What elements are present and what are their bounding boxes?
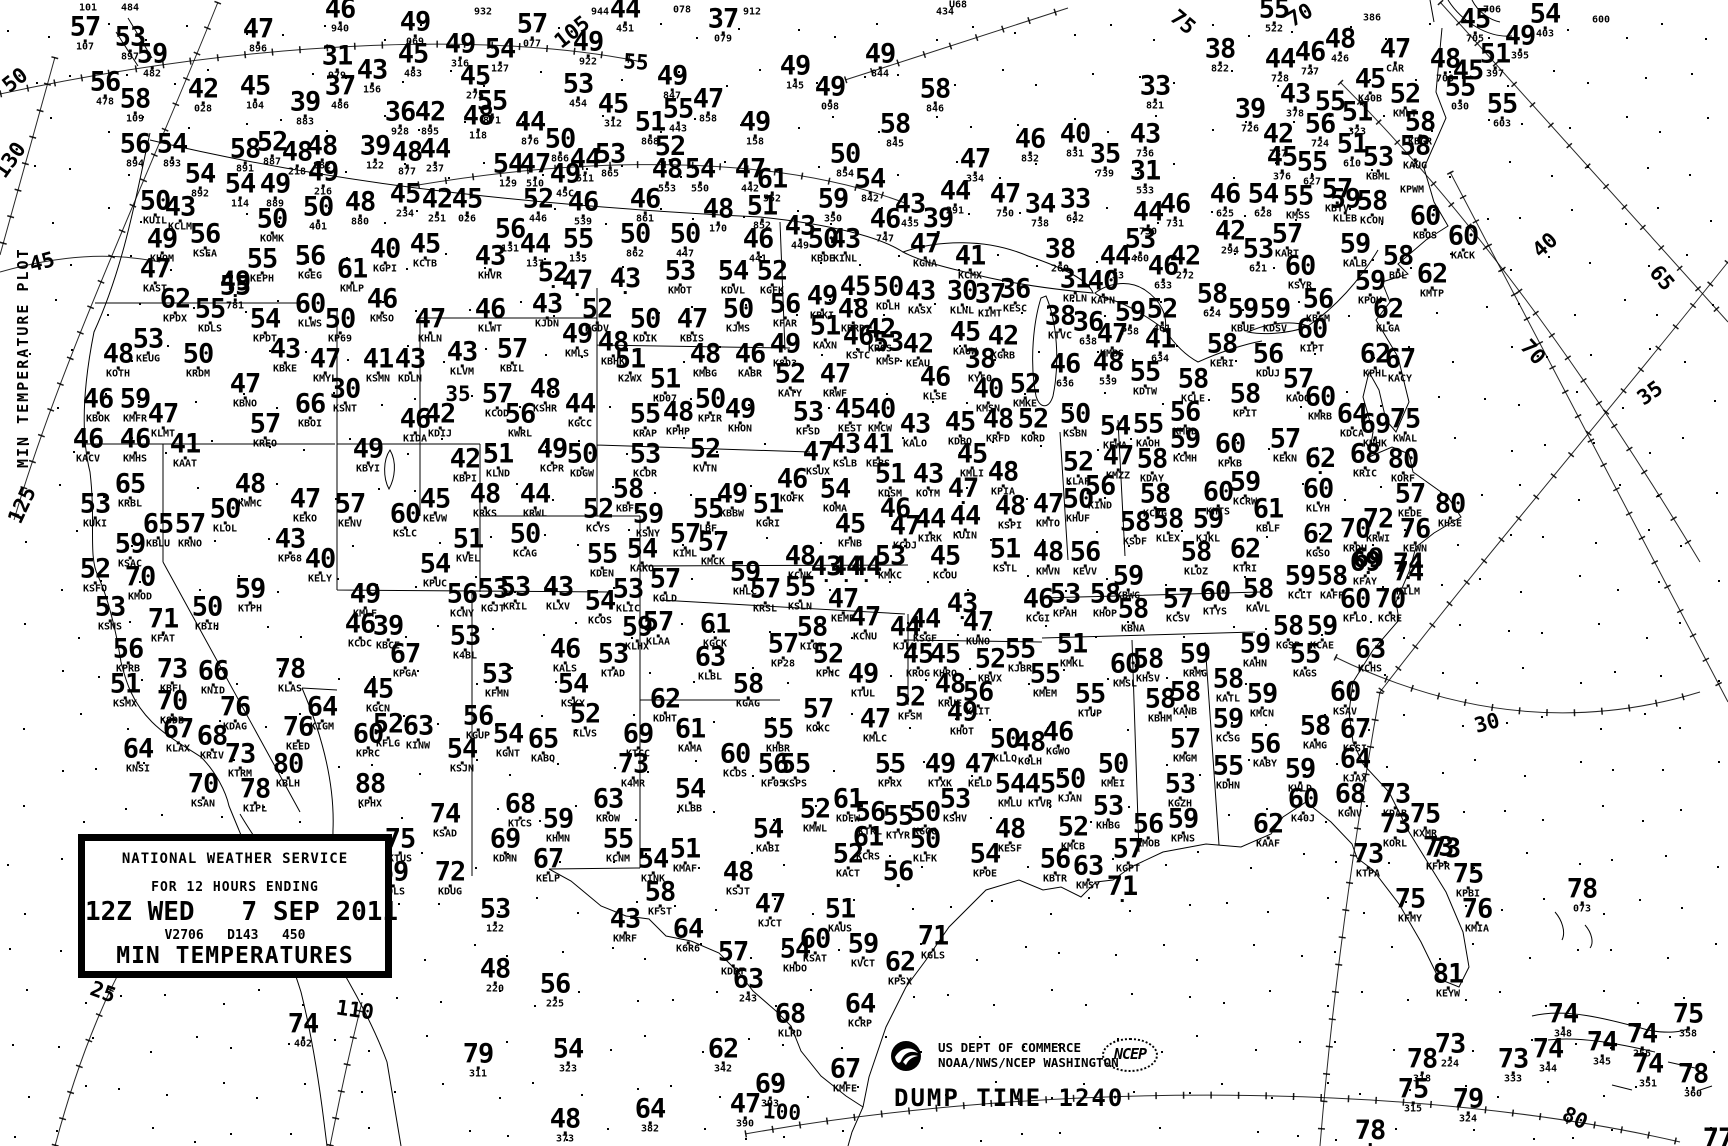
station-id: 234: [390, 209, 421, 219]
station-539: 48539: [1093, 351, 1124, 387]
station-id: KCHS: [1355, 664, 1386, 674]
station-KEKO: 47KEKO: [290, 488, 321, 524]
station-temp: 45: [903, 643, 934, 665]
station-KAMG: 58KAMG: [1300, 715, 1331, 751]
station-id: KHOT: [947, 727, 978, 737]
station-id: 894: [120, 159, 151, 169]
station-id: 351: [1633, 1079, 1664, 1089]
station-id: KRIL: [500, 602, 531, 612]
station-temp: 50: [723, 298, 754, 320]
station-temp: 46: [325, 0, 356, 20]
station-id: 251: [422, 214, 453, 224]
station-KBOS: 60KBOS: [1410, 205, 1441, 241]
station-id: K6R6: [673, 944, 704, 954]
station-temp: 43: [913, 463, 944, 485]
station-temp: 50: [830, 143, 861, 165]
station-temp: 60: [390, 503, 421, 525]
station-KPUC: 54KPUC: [420, 553, 451, 589]
station-temp: 44: [515, 111, 546, 133]
station-temp: 44: [520, 483, 551, 505]
station-KGPI: 40KGPI: [370, 238, 401, 274]
station-446: 52446: [523, 188, 554, 224]
station-id: 028: [188, 104, 219, 114]
station-880: 48880: [345, 191, 376, 227]
station-temp: 78: [1355, 1120, 1386, 1142]
station-temp: 46: [880, 498, 911, 520]
station-KSLC: 60KSLC: [390, 503, 421, 539]
station-id: KAPN: [1088, 296, 1119, 306]
station-KPOU: 59KPOU: [1355, 270, 1386, 306]
station-KALO: 43KALO: [900, 413, 931, 449]
station-KAPN: 40KAPN: [1088, 270, 1119, 306]
station-893: 54893: [157, 133, 188, 169]
station-id: 750: [990, 209, 1021, 219]
station-id: KCYS: [583, 524, 614, 534]
station-id: KAAT: [170, 459, 201, 469]
station-temp: 43: [395, 348, 426, 370]
station-id: KLXV: [543, 602, 574, 612]
station-KCOS: 54KCOS: [585, 590, 616, 626]
station-KRAP: 55KRAP: [630, 403, 661, 439]
station: 43: [610, 268, 641, 294]
station-temp: 63: [695, 646, 726, 668]
station-KBIH: 50KBIH: [192, 596, 223, 632]
station-temp: 43: [830, 228, 861, 250]
station-temp: 43: [610, 268, 641, 290]
station-temp: 50: [210, 498, 241, 520]
station-temp: 54: [855, 168, 886, 190]
map-label-600: 600: [1592, 15, 1610, 26]
station-KSFO: 52KSFO: [80, 558, 111, 594]
station-temp: 50: [670, 223, 701, 245]
station-633: 46633: [1148, 255, 1179, 291]
station-id: KAHN: [1240, 659, 1271, 669]
station-temp: 43: [1280, 83, 1311, 105]
station-026: 45026: [452, 188, 483, 224]
station-id: KOKC: [803, 724, 834, 734]
station-id: KFPR: [1423, 862, 1454, 872]
station-id: KCON: [1357, 216, 1388, 226]
station-id: KGLD: [650, 594, 681, 604]
station-KCNU: 47KCNU: [850, 606, 881, 642]
station-temp: 57: [670, 523, 701, 545]
station-id: 109: [120, 114, 151, 124]
station-temp: 55: [1487, 93, 1518, 115]
station-940: 46940: [325, 0, 356, 34]
station-id: KPSX: [885, 977, 916, 987]
station-id: KMTP: [1417, 289, 1448, 299]
station-KMLS: 49KMLS: [562, 323, 593, 359]
station-KTPH: 59KTPH: [235, 578, 266, 614]
station-temp: 61: [1253, 498, 1284, 520]
station-temp: 53: [133, 328, 164, 350]
station-KAMA: 61KAMA: [675, 718, 706, 754]
station-114: 54114: [225, 173, 256, 209]
station-temp: 63: [1355, 638, 1386, 660]
station-id: KNSI: [123, 764, 154, 774]
station-id: KGWO: [1043, 747, 1074, 757]
station-id: KASX: [905, 306, 936, 316]
station-temp: 76: [220, 696, 251, 718]
station-id: KCNM: [603, 854, 634, 864]
station-KMRB: 60KMRB: [1305, 386, 1336, 422]
station: 62: [1305, 448, 1336, 474]
station-id: KFST: [645, 907, 676, 917]
station-id: KLVM: [447, 367, 478, 377]
station-id: KVCT: [848, 959, 879, 969]
station-temp: 42: [450, 448, 481, 470]
station-KLVS: 52KLVS: [570, 703, 601, 739]
station-temp: 58: [1400, 135, 1431, 157]
station-temp: 59: [1168, 808, 1199, 830]
station-id: 747: [870, 234, 901, 244]
station-KAUG: 58KAUG: [1400, 135, 1431, 171]
station-KLFK: 50KLFK: [910, 828, 941, 864]
station-KPLN: 31KPLN: [1060, 268, 1091, 304]
station-temp: 55: [1445, 76, 1476, 98]
station-id: KINL: [830, 254, 861, 264]
station-temp: 57: [335, 493, 366, 515]
station-id: 324: [1453, 1114, 1484, 1124]
station-temp: 62: [1305, 448, 1336, 470]
station-KHSE: 80KHSE: [1435, 493, 1466, 529]
station-636: 46636: [1050, 353, 1081, 389]
station-id: KFLO: [1340, 614, 1371, 624]
station-temp: 55: [630, 403, 661, 425]
station-temp: 48: [690, 343, 721, 365]
station-KACK: 60KACK: [1448, 225, 1479, 261]
station-id: KHVR: [475, 271, 506, 281]
station-895: 42895: [415, 101, 446, 137]
station-KSUX: 47KSUX: [803, 441, 834, 477]
station-KTUP: 55KTUP: [1075, 683, 1106, 719]
station-390: 47390: [730, 1093, 761, 1129]
station-KAGS: 55KAGS: [1290, 643, 1321, 679]
station-temp: 47: [755, 893, 786, 915]
station-temp: 39: [360, 135, 391, 157]
station-temp: 71: [1107, 876, 1138, 898]
station-id: KSJT: [723, 887, 754, 897]
station-KSDF: 58KSDF: [1120, 511, 1151, 547]
station-temp: 52: [523, 188, 554, 210]
station-323: 54323: [553, 1038, 584, 1074]
station-temp: 56: [120, 133, 151, 155]
station-KMWL: 52KMWL: [800, 798, 831, 834]
station-temp: 64: [845, 993, 876, 1015]
station-id: KLFK: [910, 854, 941, 864]
station-temp: 54: [1100, 415, 1131, 437]
station-821: 33821: [1140, 75, 1171, 111]
station-temp: 70: [1375, 588, 1406, 610]
station-temp: 59: [1228, 298, 1259, 320]
station-temp: 52: [757, 260, 788, 282]
station-temp: 51: [483, 443, 514, 465]
station-KTYR: 55KTYR: [883, 805, 914, 841]
station-temp: 51: [875, 463, 906, 485]
station-id: KPAH: [1050, 609, 1081, 619]
station-345: 74345: [1587, 1031, 1618, 1067]
station-id: KBNA: [1118, 624, 1149, 634]
station-temp: 45: [945, 411, 976, 433]
station-temp: 44: [950, 505, 981, 527]
station-KLAA: 57KLAA: [643, 611, 674, 647]
station-id: KMVN: [1033, 567, 1064, 577]
station-KSNT: 30KSNT: [330, 378, 361, 414]
station-id: 073: [1567, 904, 1598, 914]
station-id: KBYI: [353, 464, 384, 474]
station-temp: 46: [345, 613, 376, 635]
station-temp: 45: [835, 513, 866, 535]
station-temp: 46: [1015, 128, 1046, 150]
station-KHDO: 54KHDO: [780, 938, 811, 974]
station-237: 44237: [420, 138, 451, 174]
station-KCRP: 64KCRP: [845, 993, 876, 1029]
station-KEPH: 55KEPH: [247, 248, 278, 284]
station-temp: 43: [830, 433, 861, 455]
station-KWAL: 75KWAL: [1390, 408, 1421, 444]
station-id: KLAX: [163, 744, 194, 754]
station-402: 74402: [288, 1013, 319, 1049]
station-KRIL: 53KRIL: [500, 576, 531, 612]
station-id: KDGW: [567, 469, 598, 479]
station-KGEG: 56KGEG: [295, 245, 326, 281]
station-temp: 43: [165, 196, 196, 218]
station-id: KMHS: [120, 454, 151, 464]
station-temp: 49: [445, 33, 476, 55]
station-id: KHON: [725, 424, 756, 434]
station-922: 49922: [573, 31, 604, 67]
station-id: KP68: [275, 554, 306, 564]
station-temp: 56: [295, 245, 326, 267]
station-temp: 54: [1248, 183, 1279, 205]
station-id: K4BL: [450, 651, 481, 661]
station-KREO: 57KREO: [250, 413, 281, 449]
station-id: KMLS: [562, 349, 593, 359]
station-temp: 50: [630, 308, 661, 330]
station-temp: 45: [950, 321, 981, 343]
station-id: KBIL: [497, 364, 528, 374]
station-id: KRNO: [175, 539, 206, 549]
station-temp: 45: [390, 183, 421, 205]
station-KGNV: 68KGNV: [1335, 783, 1366, 819]
station-KPSX: 62KPSX: [885, 951, 916, 987]
station: 71: [1107, 876, 1138, 902]
station-temp: 58: [645, 881, 676, 903]
station-id: KMCN: [1247, 709, 1278, 719]
station-KLAS: 78KLAS: [275, 658, 306, 694]
station-id: KEVW: [420, 514, 451, 524]
station-temp: 70: [157, 690, 188, 712]
station-KLAX: 67KLAX: [163, 718, 194, 754]
station-KLNL: 30KLNL: [947, 280, 978, 316]
station-KFLO: 60KFLO: [1340, 588, 1371, 624]
station-KHOT: 49KHOT: [947, 701, 978, 737]
station-temp: 68: [1350, 443, 1381, 465]
station-temp: 45: [957, 443, 988, 465]
station-temp: 57: [650, 568, 681, 590]
station-342: 62342: [708, 1038, 739, 1074]
station-temp: 52: [895, 686, 926, 708]
station-temp: 79: [1453, 1088, 1484, 1110]
station-temp: 59: [235, 578, 266, 600]
station-550: 54550: [685, 158, 716, 194]
station-temp: 42: [903, 333, 934, 355]
station-temp: 50: [1098, 753, 1129, 775]
station-id: KPIT: [1230, 409, 1261, 419]
station-id: KSHV: [940, 814, 971, 824]
station-temp: 56: [447, 583, 478, 605]
station-id: KFSM: [895, 712, 926, 722]
station-temp: 53: [480, 898, 511, 920]
station-312: 45312: [598, 93, 629, 129]
station-id: 315: [1398, 1104, 1429, 1114]
station-temp: 47: [140, 258, 171, 280]
station-temp: 57: [768, 633, 799, 655]
station-id: KJMS: [723, 324, 754, 334]
station-id: KCRP: [845, 1019, 876, 1029]
station-temp: 49: [353, 438, 384, 460]
station-KBLU: 65KBLU: [143, 513, 174, 549]
station-KDIJ: 42KDIJ: [425, 403, 456, 439]
station-temp: 47: [693, 88, 724, 110]
dept-line: US DEPT OF COMMERCE: [938, 1040, 1119, 1055]
station-temp: 62: [1417, 263, 1448, 285]
station-id: 026: [452, 214, 483, 224]
station-id: KSTL: [990, 564, 1021, 574]
station-KUKI: 53KUKI: [80, 493, 111, 529]
station-KABR: 46KABR: [735, 343, 766, 379]
station-temp: 68: [775, 1003, 806, 1025]
station-temp: 47: [965, 753, 996, 775]
station-id: KSYR: [1285, 281, 1316, 291]
station-temp: 50: [510, 523, 541, 545]
station-KDLH: 50KDLH: [873, 276, 904, 312]
station-486: 37486: [325, 75, 356, 111]
station-temp: 53: [1165, 773, 1196, 795]
station-id: KMEI: [1098, 779, 1129, 789]
station-temp: 56: [463, 705, 494, 727]
station-KMLP: 61KMLP: [337, 258, 368, 294]
station-temp: 54: [995, 773, 1026, 795]
station-temp: 60: [1288, 788, 1319, 810]
station-temp: 68: [1335, 783, 1366, 805]
station-temp: 53: [1243, 238, 1274, 260]
station-KPGA: 67KPGA: [390, 643, 421, 679]
station-KORL: 73KORL: [1380, 813, 1411, 849]
station-KELY: 40KELY: [305, 548, 336, 584]
station-id: 781: [220, 301, 251, 311]
station-KHVR: 43KHVR: [475, 245, 506, 281]
station-id: KABY: [1250, 759, 1281, 769]
station-KEED: 76KEED: [283, 716, 314, 752]
station-temp: 58: [1090, 583, 1121, 605]
station-temp: 58: [1120, 511, 1151, 533]
station-KASX: 43KASX: [905, 280, 936, 316]
station-temp: 76: [1462, 898, 1493, 920]
station-temp: 49: [537, 438, 568, 460]
station-temp: 54: [493, 723, 524, 745]
station-id: KCSV: [1163, 614, 1194, 624]
station-id: KRKS: [470, 509, 501, 519]
station-temp: 52: [690, 438, 721, 460]
noaa-logo-icon: [890, 1040, 922, 1072]
station-KBTR: 56KBTR: [1040, 848, 1071, 884]
station-id: KDUG: [435, 887, 466, 897]
station-id: KTYR: [883, 831, 914, 841]
station-KOMK: 50KOMK: [257, 208, 288, 244]
station-id: KABQ: [528, 754, 559, 764]
station-id: KCSG: [1213, 734, 1244, 744]
map-label-706: 706: [1483, 5, 1501, 16]
station-temp: 47: [948, 478, 979, 500]
station-temp: 48: [307, 135, 338, 157]
station-id: KTVR: [1025, 799, 1056, 809]
station-id: KMFE: [830, 1084, 861, 1094]
station-896: 47896: [243, 18, 274, 54]
station-temp: 50: [183, 343, 214, 365]
station-234: 45234: [390, 183, 421, 219]
station-temp: 49: [147, 228, 178, 250]
station-temp: 53: [1125, 228, 1156, 250]
station-temp: 48: [995, 495, 1026, 517]
station-temp: 56: [1303, 288, 1334, 310]
station-temp: 58: [613, 478, 644, 500]
station-temp: 56: [1070, 541, 1101, 563]
station-temp: 58: [880, 113, 911, 135]
station-temp: 43: [357, 59, 388, 81]
station-temp: 44: [420, 138, 451, 160]
station-KCDS: 60KCDS: [720, 743, 751, 779]
station-temp: 48: [1015, 731, 1046, 753]
station-temp: 49: [562, 323, 593, 345]
station-344: 74344: [1533, 1038, 1564, 1074]
station-temp: 55: [1030, 663, 1061, 685]
station-KFPR: 73KFPR: [1423, 836, 1454, 872]
station-KSAN: 70KSAN: [188, 773, 219, 809]
station-id: 727: [1295, 67, 1326, 77]
station-KGNT: 54KGNT: [493, 723, 524, 759]
station-id: KCOU: [930, 571, 961, 581]
station-id: 633: [1148, 281, 1179, 291]
station-KIPL: 78KIPL: [240, 778, 271, 814]
station-KACV: 46KACV: [73, 428, 104, 464]
station-temp: 43: [900, 413, 931, 435]
station-KUNO: 47KUNO: [963, 611, 994, 647]
min-temperature-plot-map: 5710753897594825647858109420284510447896…: [0, 0, 1728, 1146]
station-id: KMLP: [337, 284, 368, 294]
station-KUIN: 44KUIN: [950, 505, 981, 541]
station-KPOE: 54KPOE: [970, 843, 1001, 879]
station-KCOU: 45KCOU: [930, 545, 961, 581]
station-id: KLYH: [1303, 504, 1334, 514]
station-temp: 31: [1060, 268, 1091, 290]
station-id: KDLH: [873, 302, 904, 312]
station-id: 893: [157, 159, 188, 169]
station-temp: 55: [1290, 643, 1321, 665]
station-KPNS: 59KPNS: [1168, 808, 1199, 844]
station-temp: 74: [1548, 1003, 1579, 1025]
station-KHON: 49KHON: [725, 398, 756, 434]
station-376: 45376: [1267, 146, 1298, 182]
station-temp: 36: [1000, 278, 1031, 300]
station-temp: 53: [873, 331, 904, 353]
station-id: KOTM: [913, 489, 944, 499]
station-id: KEUG: [133, 354, 164, 364]
station-temp: 56: [770, 293, 801, 315]
station-id: P58: [1115, 327, 1146, 337]
station-temp: 54: [718, 260, 749, 282]
station-temp: 43: [275, 528, 306, 550]
